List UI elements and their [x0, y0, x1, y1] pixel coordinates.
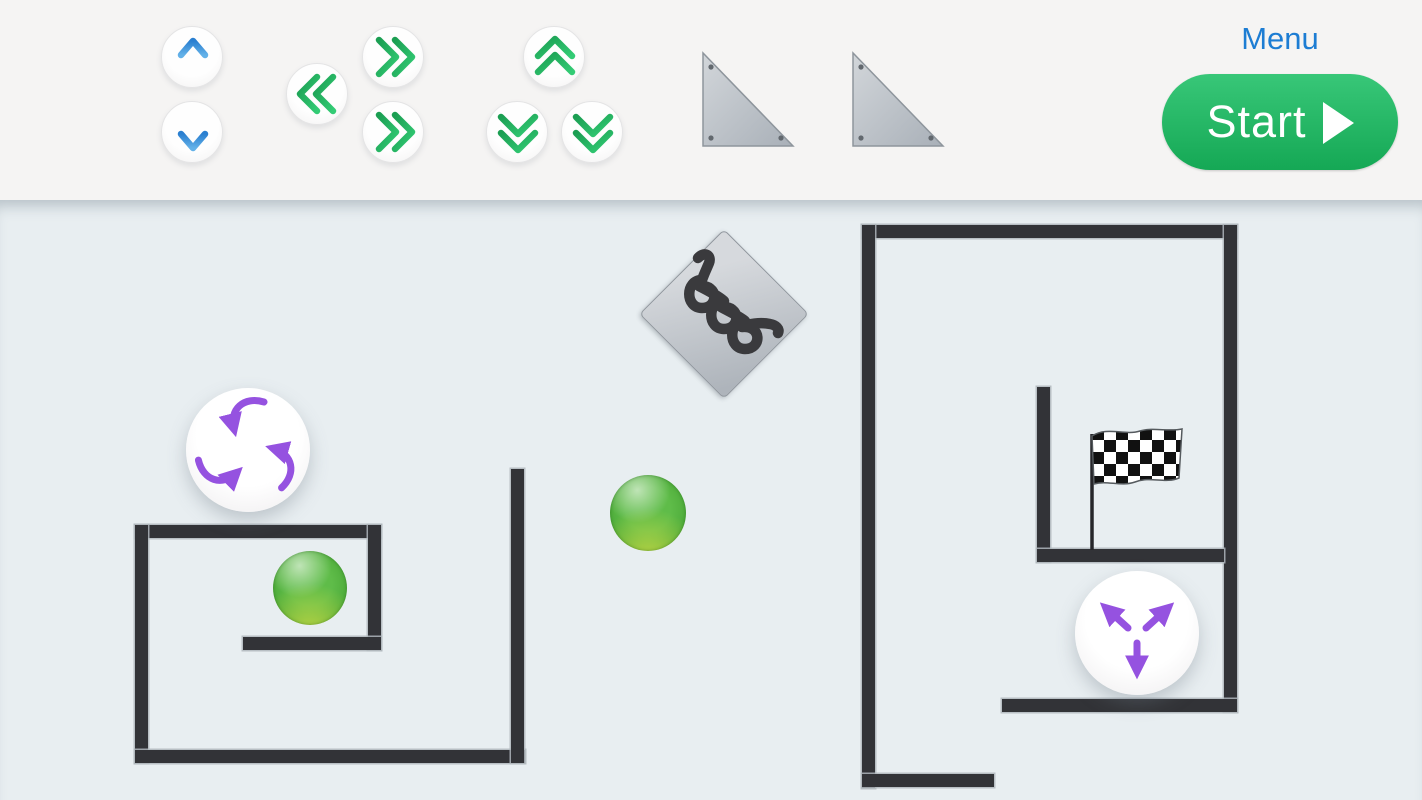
double-chevron-down-button[interactable] [561, 101, 623, 163]
wall-left-bottom [135, 750, 525, 763]
wall-right-bottom-left [862, 774, 994, 787]
wall-right-right-side [1224, 225, 1237, 712]
converging-arrows-icon [186, 388, 310, 512]
double-chevron-right-button[interactable] [362, 101, 424, 163]
start-button-label: Start [1206, 96, 1306, 148]
green-ball [610, 475, 686, 551]
double-chevron-left-icon [287, 63, 347, 125]
ramp-triangle-icon[interactable] [850, 50, 946, 150]
menu-link[interactable]: Menu [1216, 21, 1344, 57]
spring-coil-icon [652, 248, 802, 398]
green-ball [273, 551, 347, 625]
double-chevron-up-icon [524, 26, 584, 88]
playfield [0, 200, 1422, 800]
double-chevron-down-icon [487, 101, 547, 163]
arrow-up-button[interactable] [161, 26, 223, 88]
arrow-down-button[interactable] [161, 101, 223, 163]
double-chevron-down-icon [562, 101, 622, 163]
game-window: Menu Start [0, 0, 1422, 800]
wall-left-inner-vertical [368, 525, 381, 650]
double-chevron-right-button[interactable] [362, 26, 424, 88]
start-button[interactable]: Start [1162, 74, 1398, 170]
double-chevron-right-icon [363, 26, 423, 88]
ramp-triangle-icon[interactable] [700, 50, 796, 150]
double-chevron-up-button[interactable] [523, 26, 585, 88]
double-chevron-right-icon [363, 101, 423, 163]
wall-left-inner-hook [243, 637, 381, 650]
arrow-up-icon [162, 26, 222, 88]
diverging-arrows-icon [1075, 571, 1199, 695]
play-icon [1323, 102, 1354, 144]
checkered-flag-goal [1080, 420, 1198, 555]
wall-left-side [135, 525, 148, 763]
double-chevron-left-button[interactable] [286, 63, 348, 125]
double-chevron-down-button[interactable] [486, 101, 548, 163]
arrow-down-icon [162, 101, 222, 163]
wall-right-top [862, 225, 1237, 238]
repulsor-portal[interactable] [1075, 571, 1199, 695]
toolbar: Menu Start [0, 0, 1422, 200]
wall-left-tall-right [511, 469, 524, 763]
wall-left-top [135, 525, 381, 538]
attractor-portal[interactable] [186, 388, 310, 512]
wall-right-left-side [862, 225, 875, 788]
wall-flag-room-vertical [1037, 387, 1050, 562]
wall-right-lower-shelf [1002, 699, 1237, 712]
